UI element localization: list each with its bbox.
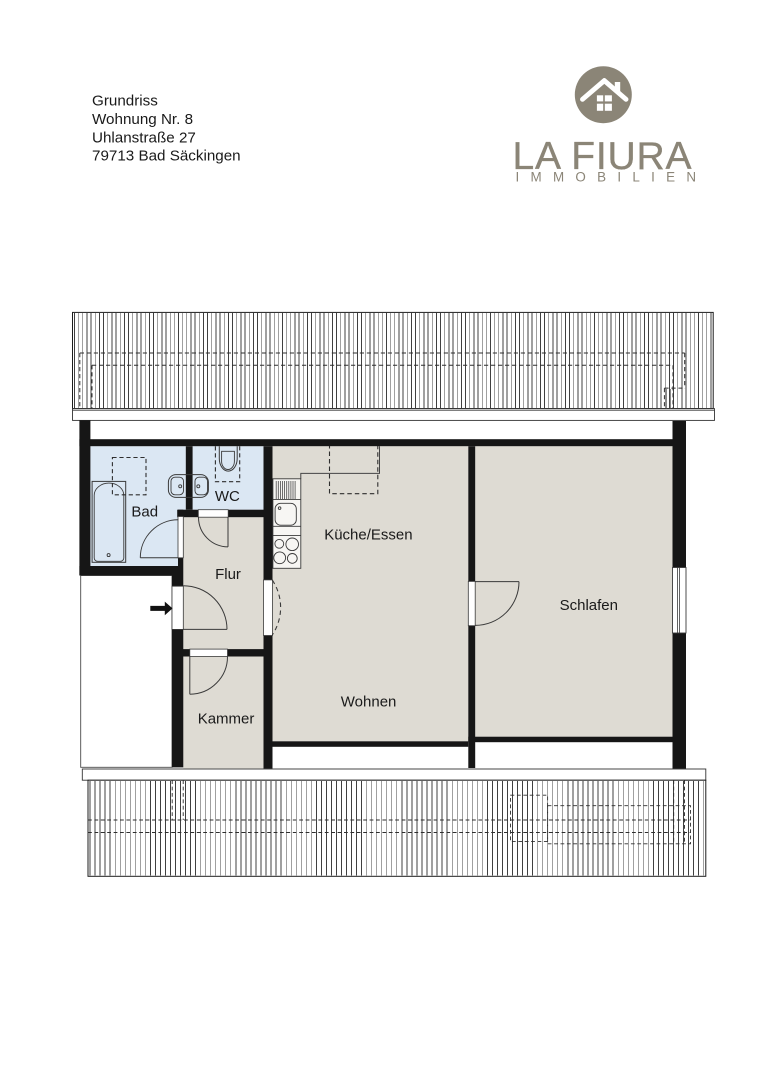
svg-text:Schlafen: Schlafen <box>560 597 618 614</box>
svg-text:Grundriss: Grundriss <box>92 93 158 110</box>
svg-text:79713 Bad Säckingen: 79713 Bad Säckingen <box>92 148 241 165</box>
svg-text:Flur: Flur <box>215 566 241 583</box>
svg-text:Bad: Bad <box>131 504 158 521</box>
svg-text:Kammer: Kammer <box>198 710 255 727</box>
svg-text:WC: WC <box>215 488 240 505</box>
svg-text:Wohnung Nr. 8: Wohnung Nr. 8 <box>92 111 193 128</box>
svg-text:Küche/Essen: Küche/Essen <box>324 527 412 544</box>
svg-text:Uhlanstraße 27: Uhlanstraße 27 <box>92 129 196 146</box>
svg-text:Wohnen: Wohnen <box>341 693 397 710</box>
svg-text:IMMOBILIEN: IMMOBILIEN <box>516 170 708 185</box>
